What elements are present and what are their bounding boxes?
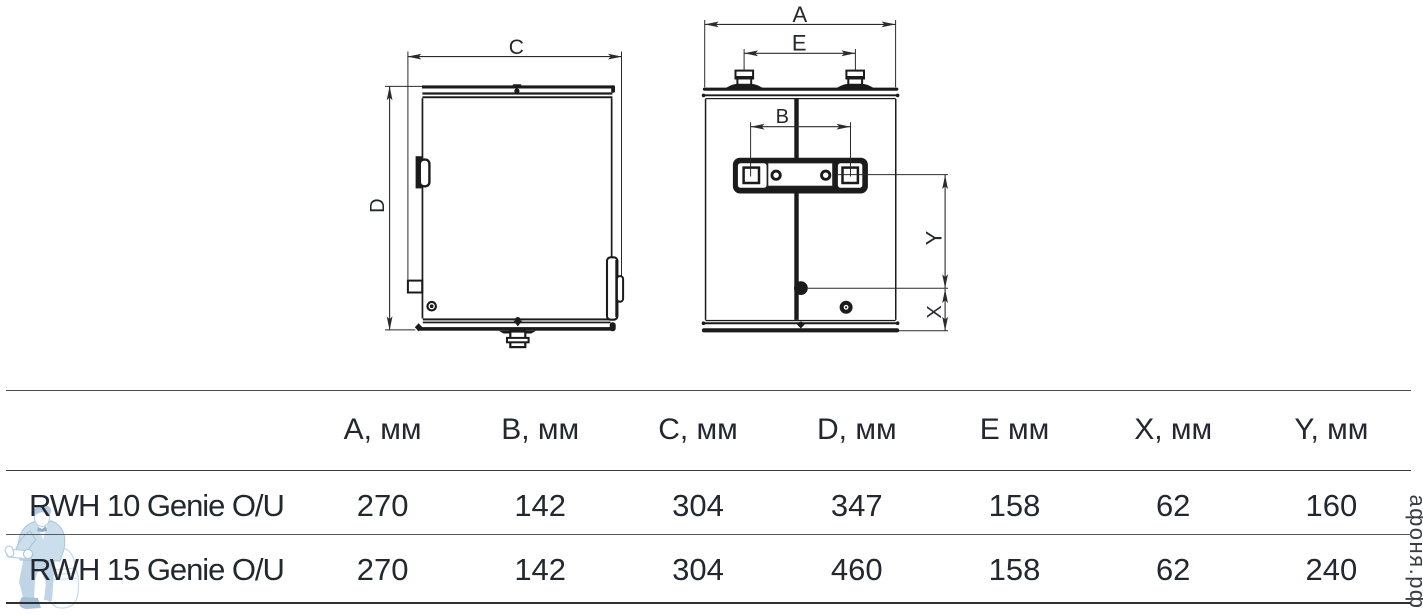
svg-text:X: X bbox=[924, 305, 946, 318]
svg-text:C: C bbox=[509, 36, 524, 59]
svg-text:D: D bbox=[367, 198, 389, 212]
svg-text:A: A bbox=[792, 2, 807, 27]
svg-text:E: E bbox=[792, 31, 807, 56]
svg-text:Y: Y bbox=[922, 230, 947, 245]
svg-text:B: B bbox=[776, 106, 789, 128]
